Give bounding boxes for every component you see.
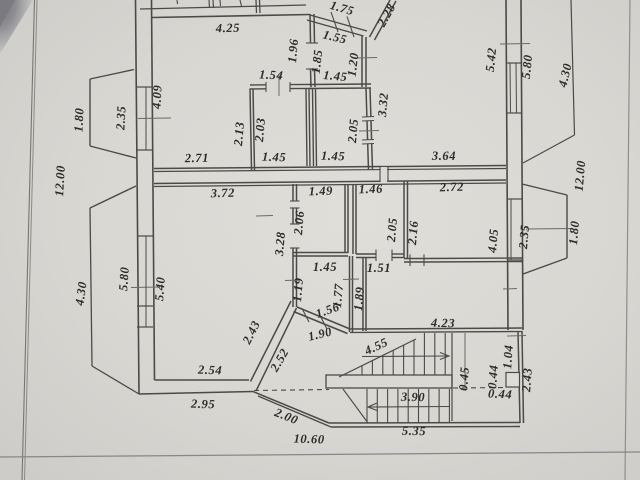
svg-text:1.80: 1.80 <box>71 107 86 132</box>
svg-text:5.80: 5.80 <box>116 266 132 291</box>
svg-text:2.35: 2.35 <box>113 105 128 131</box>
svg-text:2.43: 2.43 <box>519 367 535 393</box>
svg-text:5.42: 5.42 <box>483 47 499 73</box>
svg-text:2.16: 2.16 <box>405 220 421 247</box>
svg-text:1.54: 1.54 <box>259 67 284 82</box>
svg-text:3.90: 3.90 <box>400 390 426 404</box>
svg-text:4.05: 4.05 <box>485 228 501 254</box>
svg-text:1.45: 1.45 <box>313 260 337 274</box>
svg-text:3.64: 3.64 <box>431 149 456 163</box>
svg-text:12.00: 12.00 <box>572 159 589 191</box>
svg-text:3.32: 3.32 <box>375 92 391 118</box>
svg-text:3.72: 3.72 <box>209 186 235 201</box>
svg-text:2.95: 2.95 <box>190 397 216 412</box>
svg-text:5.80: 5.80 <box>519 54 535 80</box>
svg-text:1.45: 1.45 <box>262 150 287 165</box>
svg-text:4.09: 4.09 <box>149 84 164 110</box>
svg-text:1.89: 1.89 <box>351 286 367 312</box>
svg-text:12.00: 12.00 <box>52 165 68 197</box>
svg-text:2.05: 2.05 <box>345 118 361 144</box>
svg-text:2.72: 2.72 <box>438 180 464 195</box>
svg-text:2.06: 2.06 <box>291 210 307 237</box>
svg-text:2.03: 2.03 <box>252 117 268 143</box>
svg-text:1.46: 1.46 <box>358 182 383 197</box>
svg-text:0.45: 0.45 <box>456 366 472 391</box>
svg-text:1.04: 1.04 <box>500 344 516 369</box>
svg-text:10.60: 10.60 <box>293 431 325 446</box>
svg-text:1.49: 1.49 <box>308 184 333 199</box>
svg-text:1.19: 1.19 <box>290 277 306 303</box>
svg-text:5.40: 5.40 <box>152 276 168 301</box>
svg-text:0.44: 0.44 <box>488 386 513 401</box>
svg-text:1.51: 1.51 <box>367 261 391 275</box>
svg-text:5.35: 5.35 <box>402 424 427 438</box>
svg-text:2.13: 2.13 <box>231 121 247 147</box>
svg-text:1.80: 1.80 <box>566 220 582 246</box>
svg-text:1.45: 1.45 <box>321 149 346 164</box>
svg-text:3.28: 3.28 <box>272 231 288 258</box>
svg-text:4.23: 4.23 <box>430 316 456 330</box>
svg-text:2.71: 2.71 <box>184 151 210 165</box>
svg-text:2.54: 2.54 <box>197 363 223 378</box>
svg-text:1.45: 1.45 <box>323 68 348 84</box>
svg-text:2.05: 2.05 <box>384 217 400 243</box>
svg-text:4.25: 4.25 <box>215 21 241 35</box>
svg-text:1.96: 1.96 <box>285 38 301 64</box>
svg-text:2.35: 2.35 <box>516 224 532 250</box>
